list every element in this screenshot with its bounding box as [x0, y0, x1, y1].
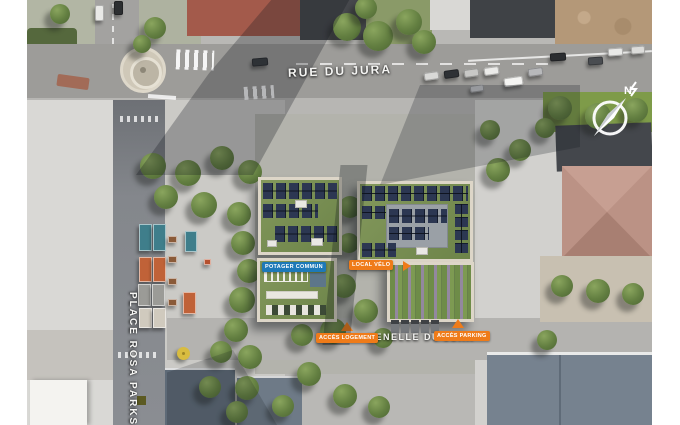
- pergola: [264, 271, 308, 282]
- roundabout: [120, 47, 166, 93]
- roof-terrace: [386, 204, 448, 248]
- rooftop-garden-rows: [390, 265, 471, 319]
- car: [550, 52, 567, 61]
- tree: [291, 324, 313, 346]
- tree: [227, 202, 251, 226]
- car: [631, 46, 646, 55]
- label-local-velo: LOCAL VÉLO: [349, 260, 393, 270]
- tree: [586, 279, 610, 303]
- tree: [50, 4, 70, 24]
- market-stall: [168, 236, 177, 243]
- market-stall: [168, 256, 177, 263]
- building-d-garden-roof: [387, 262, 474, 322]
- market-stall: [139, 257, 152, 282]
- white-building-roof: [30, 380, 87, 425]
- rooftop-equipment: [295, 200, 307, 208]
- tree: [231, 231, 255, 255]
- car: [95, 5, 104, 21]
- tree: [368, 396, 390, 418]
- solar-panels: [389, 227, 429, 240]
- tree: [333, 384, 357, 408]
- market-stall: [153, 257, 166, 282]
- access-marker-icon: [452, 319, 464, 328]
- planter-boxes: [266, 305, 326, 315]
- tree: [191, 192, 217, 218]
- car: [588, 56, 604, 65]
- building-a-solar-roof: [258, 177, 342, 255]
- market-stall: [185, 231, 197, 252]
- market-stall: [152, 284, 165, 306]
- market-stall: [183, 292, 196, 314]
- umbrella: [177, 347, 190, 360]
- dirt-lot: [555, 0, 652, 44]
- building-bottom-right: [487, 352, 652, 425]
- label-acces-parking: ACCÈS PARKING: [434, 331, 490, 341]
- market-stall: [168, 278, 177, 285]
- solar-panels: [362, 243, 396, 257]
- building-b-solar-roof: [357, 181, 473, 262]
- tree: [154, 185, 178, 209]
- tree: [551, 275, 573, 297]
- crosswalk: [120, 116, 158, 122]
- solar-panels: [263, 204, 318, 218]
- tree: [412, 30, 436, 54]
- market-stall: [139, 224, 152, 251]
- water-feature: [310, 273, 326, 287]
- market-stall: [168, 299, 177, 306]
- solar-panels: [362, 186, 468, 201]
- car: [608, 47, 624, 56]
- local-velo-arrow-icon: [403, 261, 411, 271]
- compass-icon: N: [582, 80, 644, 144]
- tree: [133, 35, 151, 53]
- market-stall: [139, 308, 152, 328]
- label-potager-commun: POTAGER COMMUN: [262, 262, 326, 272]
- building-white-roof: [430, 0, 472, 30]
- market-stall: [153, 308, 166, 328]
- crosswalk: [176, 49, 215, 70]
- aerial-photo: RUE DU JURA PLACE ROSA PARKS VENELLE DU …: [27, 0, 652, 425]
- tree: [622, 283, 644, 305]
- solar-panels: [275, 226, 337, 242]
- tree: [272, 395, 294, 417]
- tree: [144, 17, 166, 39]
- tree: [537, 330, 557, 350]
- rooftop-structure: [266, 291, 318, 299]
- building-dark-roof: [470, 0, 560, 38]
- market-stall: [153, 224, 166, 251]
- label-acces-logement: ACCÈS LOGEMENT: [316, 333, 378, 343]
- market-stall: [204, 259, 211, 265]
- rooftop-equipment: [416, 247, 428, 255]
- street-label-place-rosa-parks: PLACE ROSA PARKS: [127, 292, 138, 425]
- car: [114, 1, 123, 15]
- solar-panels: [455, 204, 468, 253]
- rooftop-equipment: [311, 238, 323, 246]
- solar-panels: [389, 209, 447, 223]
- building-pink-hipped-roof: [562, 166, 652, 258]
- solar-panels: [263, 183, 337, 199]
- site-plan-map: RUE DU JURA PLACE ROSA PARKS VENELLE DU …: [0, 0, 680, 425]
- tree: [224, 318, 248, 342]
- tree: [297, 362, 321, 386]
- tree: [229, 287, 255, 313]
- tree: [363, 21, 393, 51]
- market-stall: [138, 284, 151, 306]
- rooftop-hatch: [137, 396, 146, 405]
- rooftop-equipment: [267, 240, 277, 247]
- crosswalk: [118, 352, 158, 358]
- pavement: [27, 330, 115, 380]
- tree: [354, 299, 378, 323]
